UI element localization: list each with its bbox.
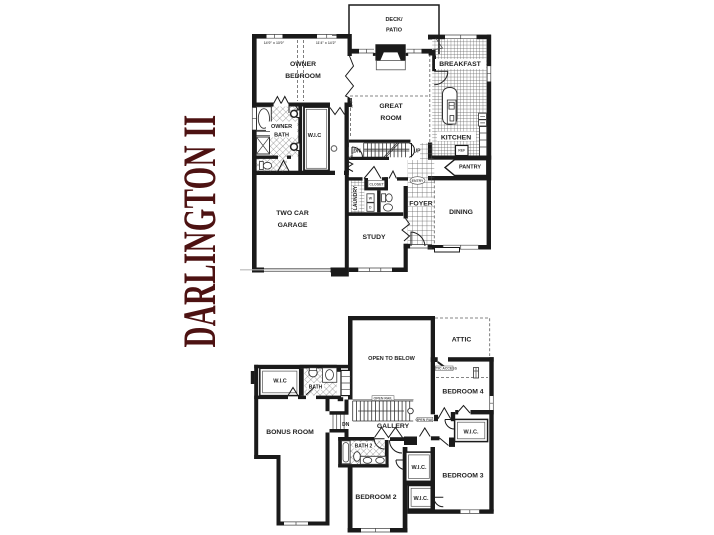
svg-text:OPEN RAIL: OPEN RAIL (415, 418, 435, 422)
svg-text:DINING: DINING (449, 209, 473, 216)
svg-text:OWNER: OWNER (271, 124, 292, 130)
svg-text:BONUS ROOM: BONUS ROOM (266, 429, 314, 436)
svg-text:GREAT: GREAT (379, 103, 403, 110)
svg-text:STUDY: STUDY (362, 234, 386, 241)
svg-text:UP: UP (414, 149, 422, 155)
svg-text:REF: REF (458, 149, 466, 153)
svg-text:FOYER: FOYER (409, 201, 433, 208)
svg-text:ENTRY: ENTRY (412, 179, 424, 183)
svg-text:GARAGE: GARAGE (278, 222, 308, 229)
svg-text:11'4" x 14'2": 11'4" x 14'2" (316, 41, 337, 45)
svg-text:ATTIC: ATTIC (452, 337, 472, 344)
svg-text:BEDROOM 2: BEDROOM 2 (355, 494, 396, 501)
svg-text:14'0" x 13'0": 14'0" x 13'0" (264, 41, 285, 45)
svg-text:W.I.C: W.I.C (308, 133, 321, 139)
svg-text:W.I.C.: W.I.C. (414, 496, 429, 502)
svg-text:BATH: BATH (309, 385, 323, 391)
svg-text:PATIO: PATIO (386, 28, 403, 34)
svg-text:W.I.C.: W.I.C. (412, 465, 427, 471)
svg-text:TWO CAR: TWO CAR (276, 210, 309, 217)
svg-text:BATH: BATH (274, 133, 289, 139)
svg-text:BEDROOM: BEDROOM (285, 73, 321, 80)
svg-text:BATH 2: BATH 2 (355, 443, 373, 449)
svg-text:W.I.C: W.I.C (273, 379, 286, 385)
svg-text:DN: DN (342, 422, 350, 428)
svg-text:DECK/: DECK/ (385, 17, 403, 23)
svg-text:OPEN TO BELOW: OPEN TO BELOW (368, 356, 415, 362)
svg-text:BREAKFAST: BREAKFAST (439, 61, 481, 68)
svg-text:OWNER: OWNER (290, 61, 316, 68)
svg-text:ATTIC ACCESS: ATTIC ACCESS (431, 367, 457, 371)
svg-text:OPEN RAIL: OPEN RAIL (373, 396, 393, 400)
svg-text:ROOM: ROOM (380, 115, 401, 122)
svg-text:BEDROOM 4: BEDROOM 4 (442, 389, 483, 396)
svg-text:DARLINGTON II: DARLINGTON II (175, 115, 226, 348)
svg-text:LAUNDRY: LAUNDRY (353, 185, 359, 210)
svg-text:GALLERY: GALLERY (377, 423, 410, 430)
svg-text:CLOSET: CLOSET (369, 182, 384, 186)
svg-text:KITCHEN: KITCHEN (441, 135, 471, 142)
svg-text:W.I.C.: W.I.C. (464, 430, 479, 436)
svg-text:BEDROOM 3: BEDROOM 3 (442, 473, 483, 480)
svg-text:PANTRY: PANTRY (459, 165, 481, 171)
